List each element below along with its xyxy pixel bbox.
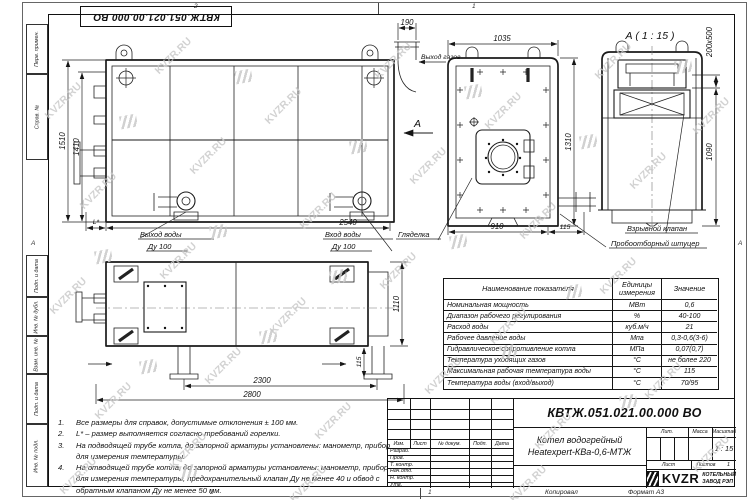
spec-header-value: Значение xyxy=(662,279,717,300)
tb-sheets-label: Листов xyxy=(691,460,721,469)
dim-l-star: L* xyxy=(93,219,100,226)
dim-200x500: 200х500 xyxy=(705,26,714,58)
spec-cell: Температура уходящих газов xyxy=(444,356,613,367)
water-inlet-label: Вход воды xyxy=(325,230,361,239)
spec-cell: Гидравлическое сопротивление котла xyxy=(444,345,613,356)
tb-role-razrab: Разраб. xyxy=(388,448,429,455)
water-outlet-label: Выход воды xyxy=(140,230,182,239)
title-block: Изм. Лист № докум. Подп. Дата Разраб. Пр… xyxy=(387,398,735,487)
kvzr-company-name: КОТЕЛЬНЫЙ ЗАВОД РЭП xyxy=(702,472,736,485)
tb-rule xyxy=(674,437,675,460)
tb-role-utv: Утв. xyxy=(388,482,429,489)
note-text: На отводящей трубе котла, до запорной ар… xyxy=(76,462,394,496)
kvzr-logo-icon xyxy=(646,471,659,487)
dim-910: 910 xyxy=(490,222,504,231)
tb-mass-header: Масса xyxy=(688,427,712,437)
note-item: 4. На отводящей трубе котла, до запорной… xyxy=(58,462,394,496)
note-text: На подводящей трубе котла, до запорной а… xyxy=(76,440,394,463)
tb-product-line1: Котел водогрейный xyxy=(537,434,623,446)
dim-1510: 1510 xyxy=(58,132,67,150)
dim-1090: 1090 xyxy=(705,143,714,161)
plan-view: 2300 2800 115 1110 xyxy=(76,262,408,404)
front-view: 1510 1410 2540 L* 190 Выход газов Выход … xyxy=(58,18,472,251)
spec-cell: Диапазон рабочего регулирования xyxy=(444,311,613,322)
spec-cell: % xyxy=(613,311,662,322)
spec-cell: °С xyxy=(613,367,662,378)
tb-rule xyxy=(388,419,513,420)
note-item: 2. L* – размер выполняется согласно треб… xyxy=(58,428,394,439)
tb-col-data: Дата xyxy=(491,439,513,448)
dim-1110: 1110 xyxy=(392,295,401,312)
dim-1410: 1410 xyxy=(72,138,81,156)
view-a-title: А ( 1 : 15 ) xyxy=(624,30,674,42)
spec-cell: °С xyxy=(613,378,662,389)
explosion-valve-label: Взрывной клапан xyxy=(627,224,687,233)
dim-2300: 2300 xyxy=(252,376,271,385)
tb-role-prov: Пров. xyxy=(388,455,429,462)
note-item: 3. На подводящей трубе котла, до запорно… xyxy=(58,440,394,463)
spec-cell: °С xyxy=(613,356,662,367)
tb-sheets-value: 1 xyxy=(721,460,736,469)
spec-cell: Мпа xyxy=(613,333,662,344)
spec-cell: 0,6 xyxy=(662,300,717,311)
tb-scale-header: Масштаб xyxy=(712,427,736,437)
spec-cell: МПа xyxy=(613,345,662,356)
spec-cell: Рабочее давление воды xyxy=(444,333,613,344)
note-item: 1. Все размеры для справок, допустимые о… xyxy=(58,417,394,428)
tb-role-tkontr: Т. контр. xyxy=(388,461,429,468)
sampling-fitting-label: Пробоотборный штуцер xyxy=(611,239,699,248)
tb-rule xyxy=(660,437,661,460)
spec-cell: 40-100 xyxy=(662,311,717,322)
tb-col-izm: Изм. xyxy=(388,439,410,448)
dim-115-side: 115 xyxy=(560,224,571,231)
note-number: 2. xyxy=(58,428,76,439)
tb-lit-header: Лит. xyxy=(646,427,688,437)
spec-header-name: Наименование показателя xyxy=(444,279,613,300)
note-number: 4. xyxy=(58,462,76,496)
tb-scale-value: 1 : 15 xyxy=(712,437,736,460)
kvzr-logo-text: KVZR xyxy=(662,471,699,486)
spec-cell: Расход воды xyxy=(444,322,613,333)
tb-doc-number: КВТЖ.051.021.00.000 ВО xyxy=(513,399,736,427)
spec-cell: 0,3-0,6(3-6) xyxy=(662,333,717,344)
spec-header-units: Единицы измерения xyxy=(613,279,662,300)
tb-rule xyxy=(388,409,513,410)
spec-cell: не более 220 xyxy=(662,356,717,367)
tb-role-nkontr: Н. контр. xyxy=(388,475,429,482)
spec-cell: Температура воды (вход/выход) xyxy=(444,378,613,389)
dim-1035: 1035 xyxy=(493,34,511,43)
dim-190: 190 xyxy=(400,18,414,27)
page: Перв. примен. Справ. № Подп. и дата Инв.… xyxy=(0,0,750,500)
side-view: 1035 1310 910 115 xyxy=(448,34,596,235)
tb-company-logo: KVZR КОТЕЛЬНЫЙ ЗАВОД РЭП xyxy=(646,469,736,488)
water-outlet-dn: Ду 100 xyxy=(147,242,172,251)
note-number: 1. xyxy=(58,417,76,428)
spec-cell: МВт xyxy=(613,300,662,311)
spec-cell: 21 xyxy=(662,322,717,333)
water-inlet-dn: Ду 100 xyxy=(331,242,356,251)
view-direction-arrow-label: А xyxy=(413,118,421,130)
notes-list: 1. Все размеры для справок, допустимые о… xyxy=(58,417,394,496)
dim-1310: 1310 xyxy=(564,133,573,151)
spec-cell: Максимальная рабочая температура воды xyxy=(444,367,613,378)
note-text: L* – размер выполняется согласно требова… xyxy=(76,428,394,439)
spec-cell: 0,07(0,7) xyxy=(662,345,717,356)
tb-role-nachotd: Нач.отд. xyxy=(388,468,429,475)
dim-2540: 2540 xyxy=(338,218,357,227)
tb-col-docnum: № докум. xyxy=(430,439,469,448)
hatch-bolts xyxy=(147,285,183,329)
tb-rule xyxy=(388,429,513,430)
tb-rule xyxy=(513,465,646,466)
note-number: 3. xyxy=(58,440,76,463)
tb-col-list: Лист xyxy=(410,439,430,448)
tb-product-line2: Heatexpert-КВа-0,6-МТЖ xyxy=(528,446,631,458)
tb-sheet-label: Лист xyxy=(646,460,691,469)
spec-table: Наименование показателя Единицы измерени… xyxy=(443,278,719,390)
dim-115-plan: 115 xyxy=(356,356,363,367)
tb-col-podp: Подп. xyxy=(469,439,491,448)
spec-cell: Номинальная мощность xyxy=(444,300,613,311)
spec-cell: 70/95 xyxy=(662,378,717,389)
sight-glass-label: Гляделка xyxy=(398,230,430,239)
tb-product-name: Котел водогрейный Heatexpert-КВа-0,6-МТЖ xyxy=(513,427,646,465)
dim-2800: 2800 xyxy=(242,390,261,399)
gas-outlet-label: Выход газов xyxy=(421,53,461,61)
note-text: Все размеры для справок, допустимые откл… xyxy=(76,417,394,428)
spec-cell: куб.м/ч xyxy=(613,322,662,333)
burner-plate-bolts xyxy=(485,139,521,176)
spec-cell: 115 xyxy=(662,367,717,378)
